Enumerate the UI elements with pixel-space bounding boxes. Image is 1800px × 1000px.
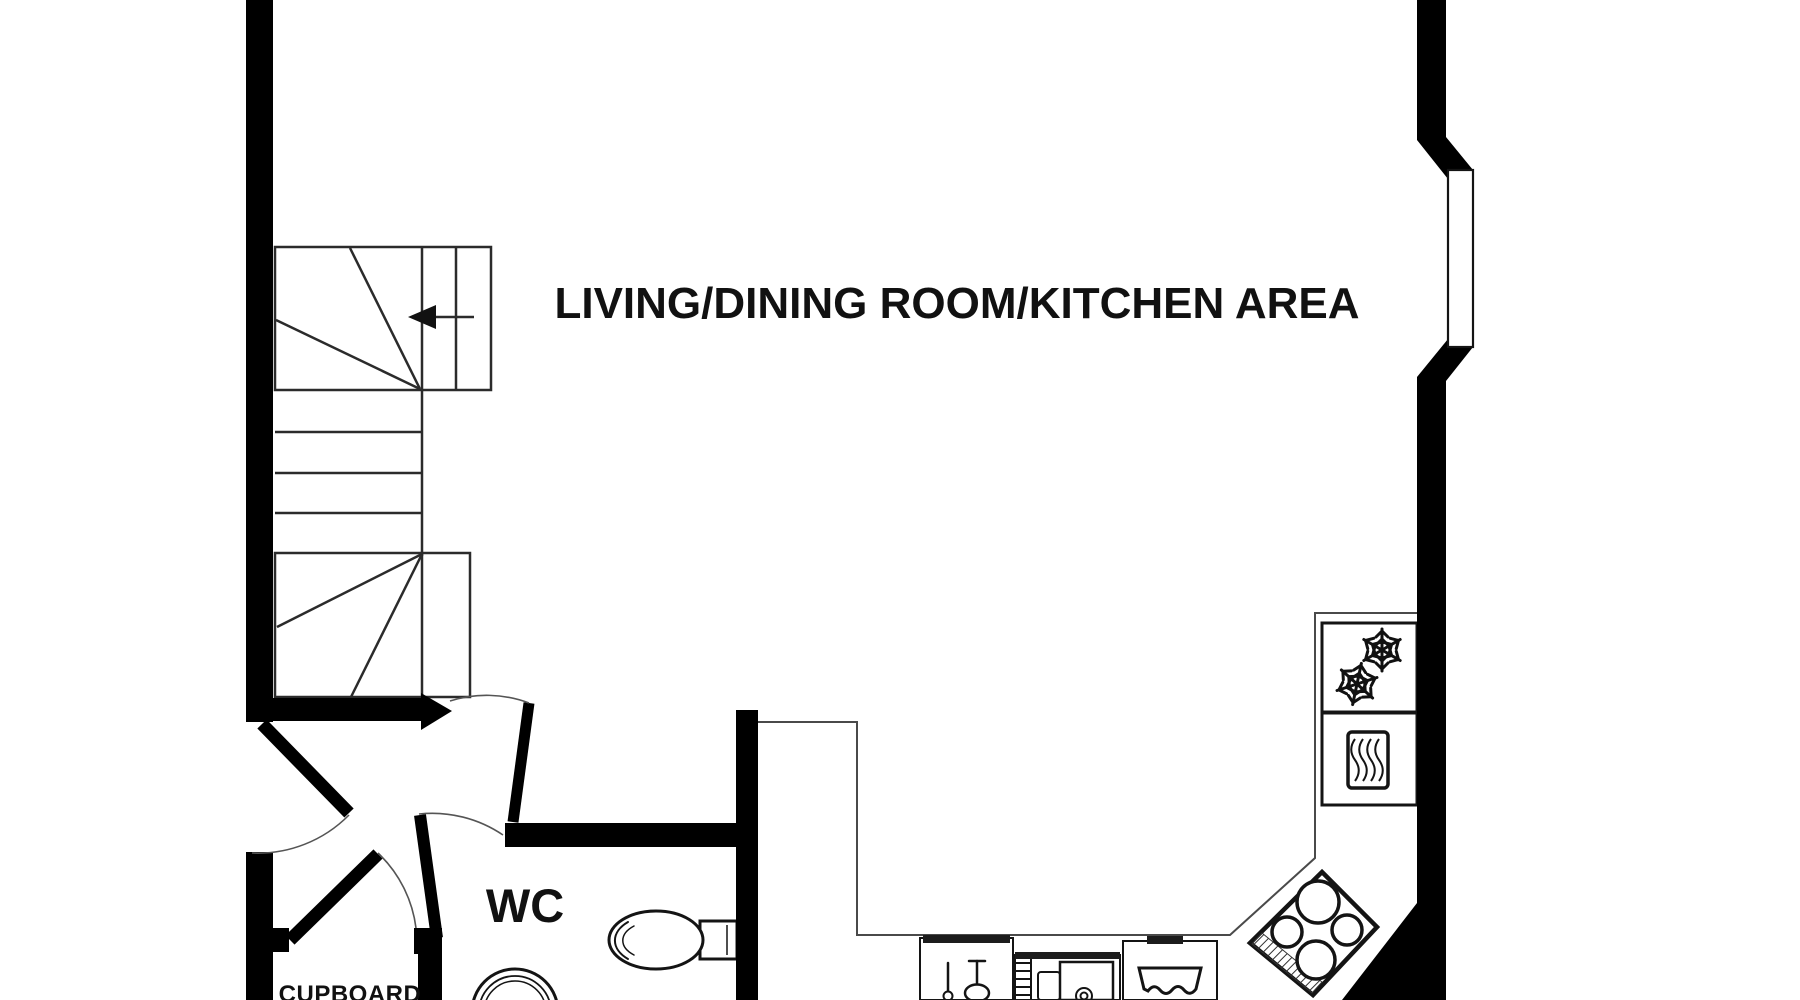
burner-top <box>1297 881 1339 923</box>
fridge-freezer-unit <box>1322 623 1417 805</box>
cupboard-door-leaf <box>290 854 378 940</box>
sink-top-edge <box>1147 936 1183 944</box>
toilet-icon <box>609 911 737 969</box>
floor-plan-canvas: LIVING/DINING ROOM/KITCHEN AREA WC CUPBO… <box>0 0 1800 1000</box>
washer-detail-panel <box>1038 972 1060 1000</box>
left-wall-upper <box>246 0 273 722</box>
wc-door-leaf <box>420 815 437 938</box>
cupboard-door-arc <box>378 853 416 928</box>
washing-machine-unit <box>1015 952 1120 1000</box>
understair-wall <box>273 698 421 721</box>
entry-door-arc <box>252 815 349 853</box>
living-dining-kitchen-label: LIVING/DINING ROOM/KITCHEN AREA <box>554 279 1359 328</box>
washer-top-edge <box>1015 952 1120 959</box>
burner-right <box>1332 915 1362 945</box>
staircase <box>275 247 491 697</box>
stair-lower-winder-diagonal-1 <box>277 554 422 627</box>
stair-winder-diagonal-2 <box>276 320 420 389</box>
wc-kitchen-divider-wall <box>736 710 758 1000</box>
bay-window <box>1448 170 1473 347</box>
hand-basin-icon <box>472 969 558 1000</box>
cupboard-wc-divider-wall <box>418 950 442 1000</box>
right-wall-upper <box>1417 0 1446 140</box>
left-wall-lower <box>246 852 273 1000</box>
burner-bottom <box>1297 941 1335 979</box>
cupboard-label: CUPBOARD <box>279 981 422 1000</box>
stair-lower-winder-box <box>275 553 470 697</box>
wc-label: WC <box>486 879 564 932</box>
living-room-door-leaf <box>513 703 529 822</box>
wc-door-arc <box>419 813 503 835</box>
stairs-direction-left-arrow-icon <box>408 305 474 329</box>
butler-sink-unit <box>1123 936 1217 1000</box>
entry-door-leaf <box>262 724 349 813</box>
stair-lower-winder-diagonal-2 <box>351 554 422 697</box>
right-wall-mid <box>1417 377 1446 905</box>
hob-icon <box>1250 872 1377 995</box>
floor-plan: LIVING/DINING ROOM/KITCHEN AREA WC CUPBO… <box>0 0 1800 1000</box>
stair-upper-winder-box <box>275 247 491 390</box>
understair-right-arrow-icon <box>421 693 452 730</box>
dishwasher-top-edge <box>923 935 1010 943</box>
burner-left <box>1272 917 1302 947</box>
toilet-cistern <box>700 921 737 959</box>
cupboard-left-jamb <box>273 928 289 952</box>
freezer-box <box>1322 623 1417 712</box>
stair-winder-diagonal-1 <box>350 248 420 389</box>
scalloped-basin-icon <box>1139 968 1201 994</box>
wc-top-wall <box>505 823 737 847</box>
dishwasher-unit <box>920 935 1013 1000</box>
